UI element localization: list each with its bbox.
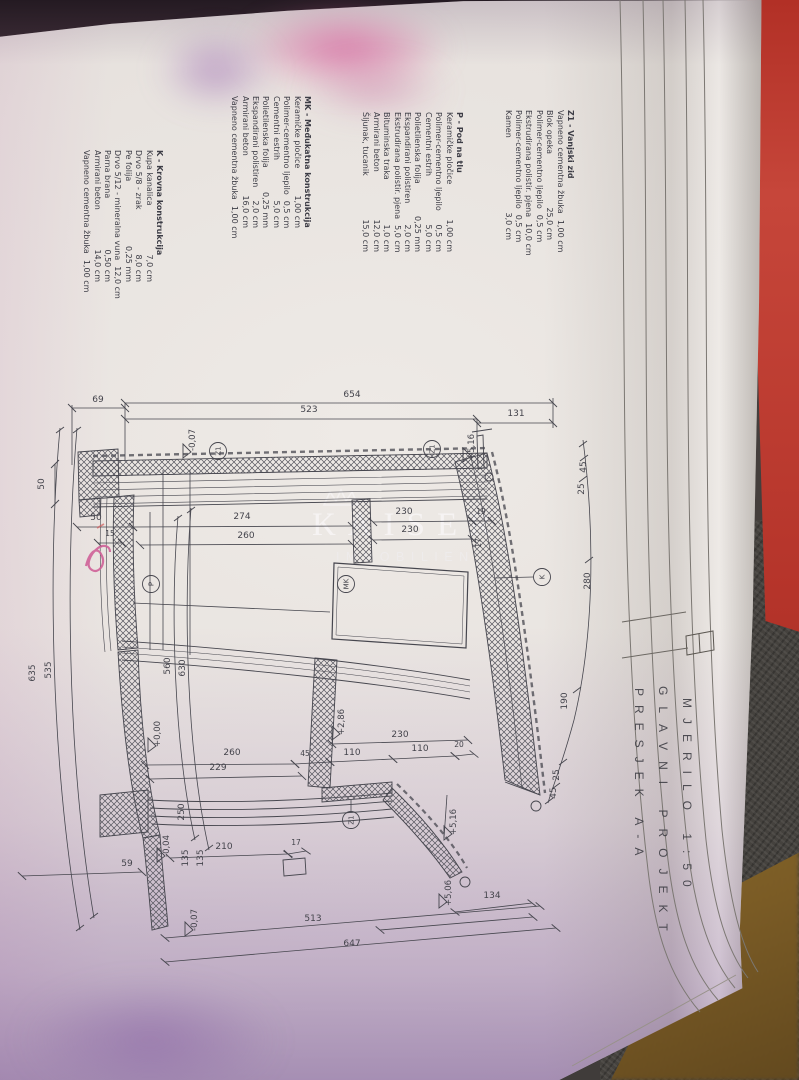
legend-item: Ekspandirani polistiren2,0 cm: [250, 96, 260, 228]
legend-item: Armirani beton14,0 cm: [91, 150, 101, 282]
watermark: KAISER IMMOBILIEN: [312, 488, 542, 564]
title-section: PRESJEK A-A: [632, 688, 646, 864]
legend-item: Kupa kanalica7,0 cm: [143, 150, 153, 282]
legend-item: Cementni estrih5,0 cm: [422, 112, 432, 252]
legend-block-krovna: K - Krovna konstrukcijaKupa kanalica7,0 …: [80, 150, 164, 282]
legend-item: Blok opeka25,0 cm: [544, 110, 554, 240]
legend-item: Polimer-cementno ljepilo0,5 cm: [533, 110, 543, 240]
legend-item: Polimer-cementno ljepilo0,5 cm: [281, 96, 291, 228]
legend-header: K - Krovna konstrukcija: [154, 150, 164, 282]
legend-item: Bituminska traka1,0 cm: [381, 112, 391, 252]
legend-header: MK - Međukatna konstrukcija: [302, 96, 312, 228]
photo-scene: KAISER IMMOBILIEN: [0, 0, 799, 1080]
legend-item: Vapneno cementna žbuka1,00 cm: [554, 110, 564, 240]
legend-item: Pe folija0,25 mm: [122, 150, 132, 282]
legend-header: P - Pod na tlu: [454, 112, 464, 252]
legend-item: Kamen3,0 cm: [502, 110, 512, 240]
legend-item: Vapneno cementna žbuka1,00 cm: [229, 96, 239, 228]
legend-item: Ekspandirani polistiren2,0 cm: [402, 112, 412, 252]
legend-item: Cementni estrih5,0 cm: [270, 96, 280, 228]
legend-item: Armirani beton12,0 cm: [370, 112, 380, 252]
legend-item: Polimer-cementno ljepilo0,5 cm: [433, 112, 443, 252]
legend-item: Ekstrudirana polistir. pjena10,0 cm: [523, 110, 533, 240]
legend-item: Šljunak, tucanik15,0 cm: [360, 112, 370, 252]
legend-block-pod: P - Pod na tluKeramičke pločice1,00 cmPo…: [364, 112, 464, 252]
watermark-subtitle: IMMOBILIEN: [336, 550, 542, 564]
title-project: GLAVNI PROJEKT: [656, 686, 670, 942]
legend-item: Keramičke pločice1,00 cm: [443, 112, 453, 252]
legend-block-vanjski-zid: Z1 - Vanjski zidVapneno cementna žbuka1,…: [499, 110, 575, 240]
legend-item: Polimer-cementno ljepilo0,5 cm: [513, 110, 523, 240]
legend-item: Armirani beton16,0 cm: [239, 96, 249, 228]
crown-icon: [322, 488, 362, 508]
legend-item: Keramičke pločice1,00 cm: [291, 96, 301, 228]
legend-item: Polietilenska folija0,25 mm: [260, 96, 270, 228]
legend-item: Drvo 5/8 - zrak8,0 cm: [133, 150, 143, 282]
legend-block-medukatna: MK - Međukatna konstrukcijaKeramičke plo…: [228, 96, 312, 228]
title-scale: MJERILO 1:50: [680, 698, 694, 897]
watermark-name: KAISER: [312, 508, 542, 542]
legend-header: Z1 - Vanjski zid: [565, 110, 575, 240]
pink-light-blotch-2: [300, 60, 450, 120]
legend-item: Vapneno cementna žbuka1,00 cm: [81, 150, 91, 282]
legend-item: Ekstrudirana polistir. pjena5,0 cm: [391, 112, 401, 252]
legend-item: Parna brana0,50 cm: [102, 150, 112, 282]
legend-item: Polietilenska folija0,25 mm: [412, 112, 422, 252]
legend-item: Drvo 5/12 - mineralna vuna12,0 cm: [112, 150, 122, 282]
